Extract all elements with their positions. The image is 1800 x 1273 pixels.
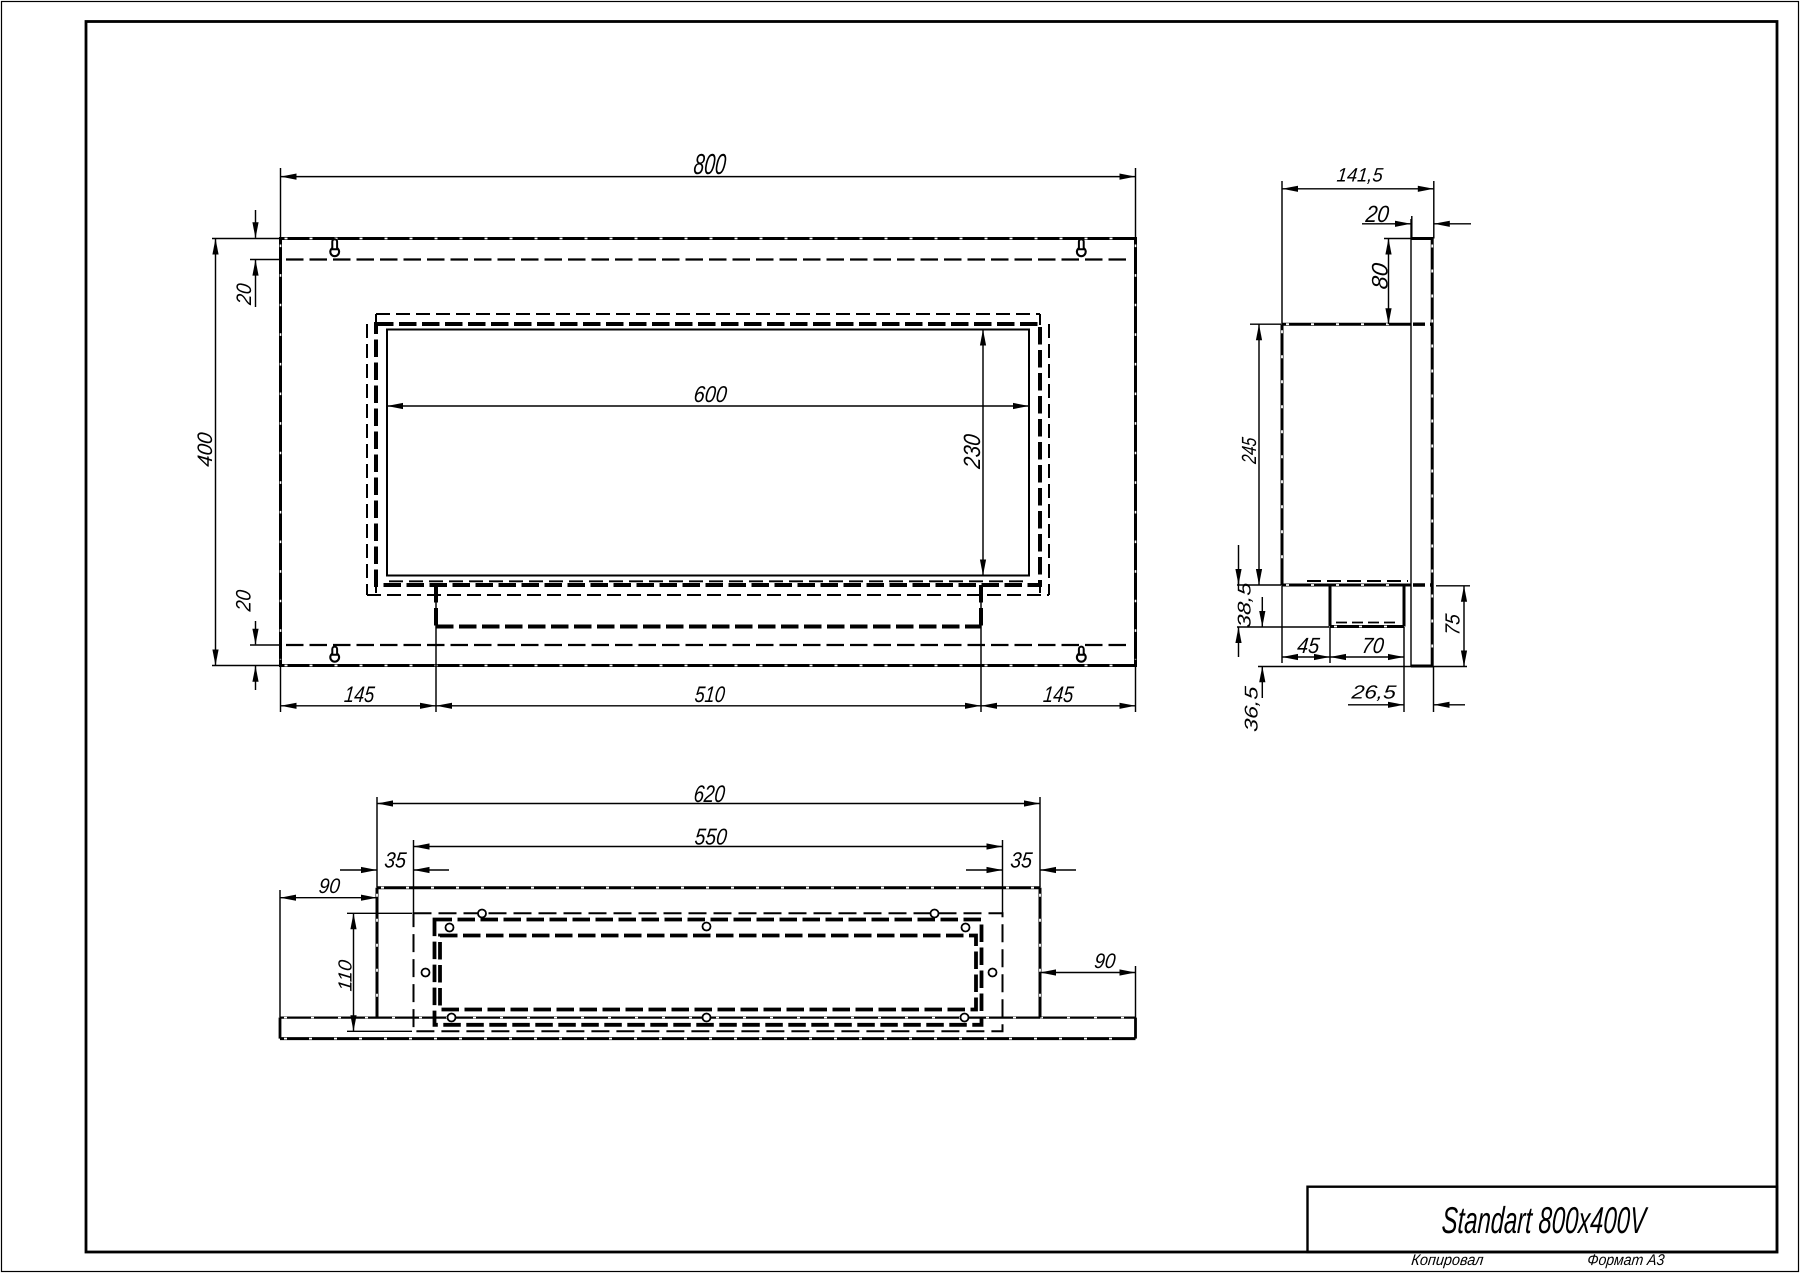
svg-text:80: 80	[1368, 261, 1393, 290]
svg-text:800: 800	[692, 149, 727, 181]
svg-text:90: 90	[318, 875, 342, 898]
svg-text:510: 510	[694, 682, 727, 707]
svg-text:45: 45	[1296, 633, 1321, 658]
svg-text:145: 145	[343, 682, 376, 707]
svg-text:600: 600	[693, 381, 729, 407]
svg-text:110: 110	[336, 959, 357, 993]
svg-text:75: 75	[1442, 612, 1465, 636]
svg-text:20: 20	[233, 282, 256, 307]
svg-text:620: 620	[692, 781, 726, 808]
svg-text:90: 90	[1093, 950, 1117, 973]
svg-text:Формат А3: Формат А3	[1586, 1252, 1665, 1269]
svg-text:70: 70	[1361, 633, 1386, 658]
svg-text:36,5: 36,5	[1241, 685, 1262, 733]
svg-text:141,5: 141,5	[1336, 164, 1384, 186]
svg-text:Копировал: Копировал	[1410, 1252, 1484, 1269]
svg-text:245: 245	[1238, 436, 1261, 466]
svg-text:20: 20	[233, 589, 256, 614]
svg-text:145: 145	[1042, 682, 1075, 707]
svg-text:230: 230	[959, 433, 985, 471]
svg-text:35: 35	[383, 847, 408, 872]
svg-text:550: 550	[694, 824, 729, 850]
svg-text:20: 20	[1364, 201, 1391, 227]
svg-text:26,5: 26,5	[1350, 682, 1398, 703]
svg-text:35: 35	[1009, 847, 1034, 872]
svg-text:Standart 800x400V: Standart 800x400V	[1441, 1199, 1649, 1241]
svg-text:38,5: 38,5	[1234, 581, 1255, 629]
svg-text:400: 400	[194, 431, 217, 468]
